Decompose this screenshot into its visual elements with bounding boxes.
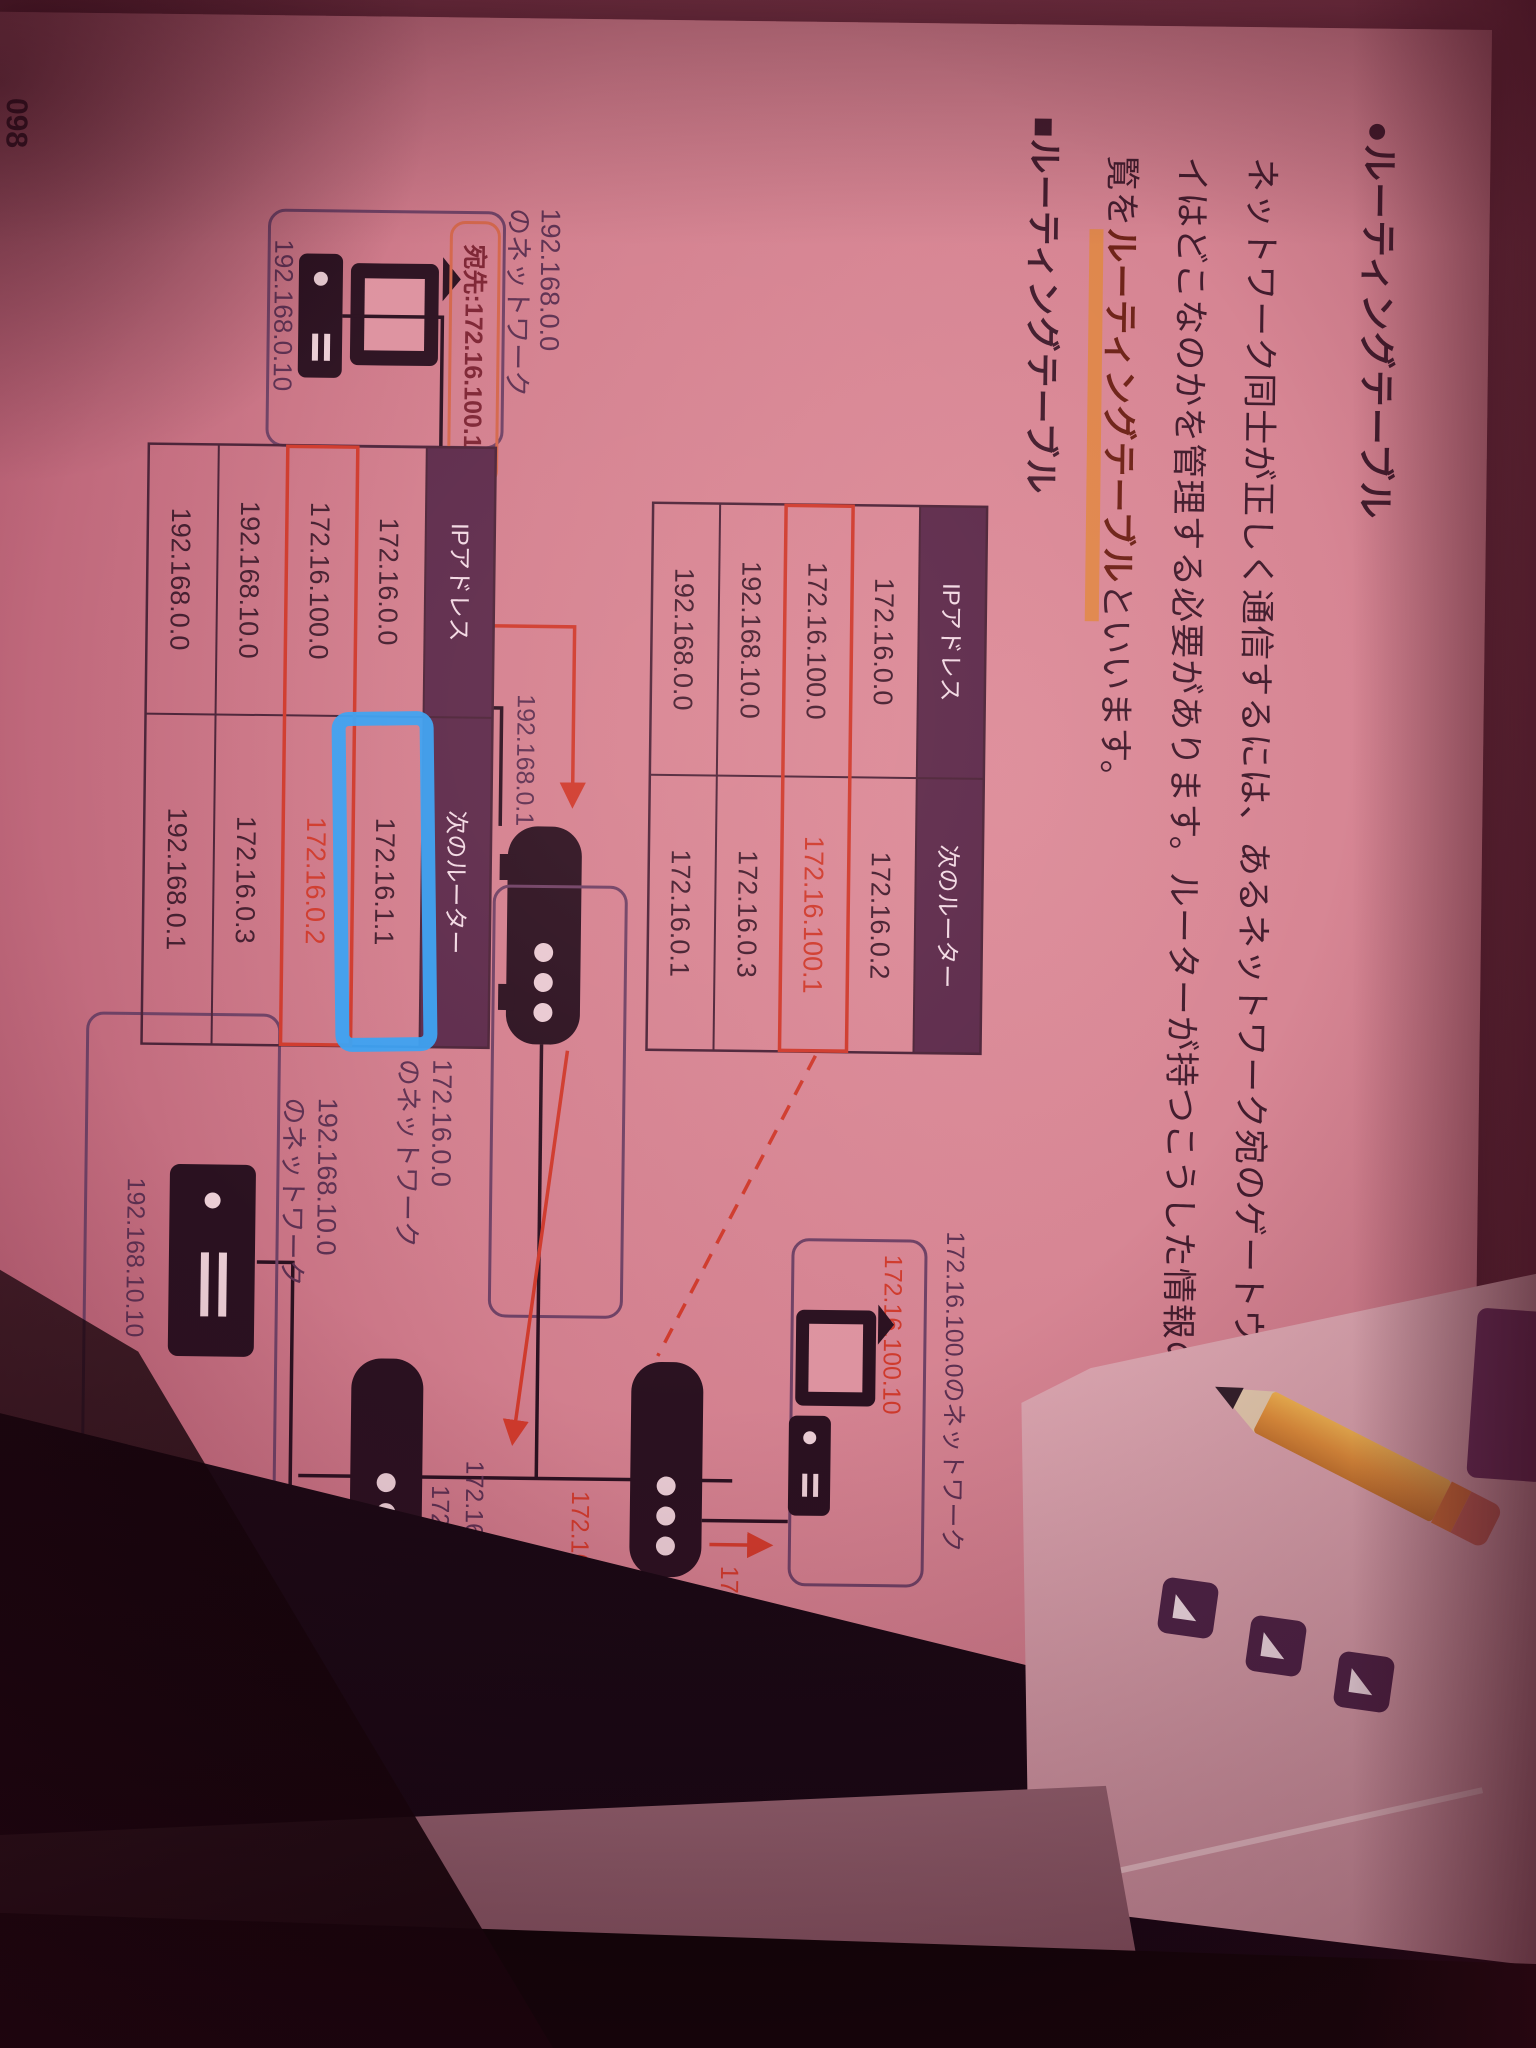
table-cell: 172.16.0.3 <box>731 850 763 978</box>
table-cell: 192.168.10.0 <box>233 501 265 659</box>
body-line-1: ネットワーク同士が正しく通信するには、あるネットワーク宛のゲートウェ <box>1227 157 1281 1381</box>
network-d-label-1: 192.168.10.0 <box>311 1098 343 1256</box>
router-r3-icon <box>349 1358 424 1574</box>
network-c-label-2: のネットワーク <box>391 1059 423 1248</box>
body-line-3: 覧をルーティングテーブルといいます。 <box>1095 155 1143 796</box>
network-a-label-1: 192.168.0.0 <box>534 208 566 351</box>
table-cell-marked: 172.16.1.1 <box>369 818 401 946</box>
page-number: 098 <box>0 98 33 148</box>
page-title: ●ルーティングテーブル <box>1354 120 1401 519</box>
body-line-2: イはどこなのかを管理する必要があります。ルーターが持つこうした情報の一 <box>1157 156 1211 1412</box>
table-cell: 172.16.100.0 <box>303 502 335 660</box>
packet-path-3 <box>709 1545 769 1546</box>
network-b-label: 172.16.100.0のネットワーク <box>937 1231 969 1552</box>
pc-a-address: 192.168.0.10 <box>267 239 299 391</box>
server-address: 192.168.10.10 <box>120 1177 150 1337</box>
table-cell: 172.16.0.3 <box>230 816 262 944</box>
lower-header-next: 次のルーター <box>441 810 470 954</box>
upper-header-ip: IPアドレス <box>936 583 964 702</box>
r2-wan-address: 172.16.0.2 <box>565 1491 594 1610</box>
network-d-label-2: のネットワーク <box>277 1097 309 1286</box>
section-tab <box>1466 1307 1536 1482</box>
book-page: ●ルーティングテーブル ネットワーク同士が正しく通信するには、あるネットワーク宛… <box>0 12 1492 1790</box>
table-cell: 192.168.0.0 <box>164 508 196 651</box>
table-cell: 172.16.0.0 <box>372 518 404 646</box>
page-edge-highlight <box>1023 1787 1483 1895</box>
router-r2-icon <box>629 1362 704 1578</box>
lower-header-ip: IPアドレス <box>444 523 472 642</box>
network-a-label-2: のネットワーク <box>501 208 533 397</box>
highlighted-term: ルーティングテーブル <box>1097 227 1141 583</box>
routing-table-upper: IPアドレス 次のルーター 172.16.0.0 172.16.0.2 172.… <box>646 503 987 1054</box>
table-cell-highlighted: 172.16.100.1 <box>797 836 829 994</box>
table-cell: 172.16.0.1 <box>664 849 696 977</box>
upper-header-next: 次のルーター <box>932 844 961 988</box>
r2-uplink <box>702 1520 788 1521</box>
r1-wan-address: 172.16.0.1 <box>459 1460 488 1579</box>
table-cell: 172.16.100.0 <box>801 562 833 720</box>
book-photo: ●ルーティングテーブル ネットワーク同士が正しく通信するには、あるネットワーク宛… <box>0 0 1536 2048</box>
table-cell: 192.168.10.0 <box>735 561 767 719</box>
table-cell: 192.168.0.1 <box>161 807 193 950</box>
page-content: ●ルーティングテーブル ネットワーク同士が正しく通信するには、あるネットワーク宛… <box>0 12 1492 1790</box>
r3-downlink <box>254 1262 353 1516</box>
destination-callout-text: 宛先:172.16.100.10 <box>458 243 490 463</box>
table-cell: 192.168.0.0 <box>668 568 700 711</box>
router-r1-icon <box>498 826 583 1045</box>
r1-lan-address: 192.168.0.1 <box>510 694 540 826</box>
server-icon <box>168 1164 256 1357</box>
r2-lan-address: 172.16.100.1 <box>713 1566 743 1712</box>
section-title: ■ルーティングテーブル <box>1020 116 1065 494</box>
r3-wan-address: 172.16.0.3 <box>425 1485 454 1604</box>
network-c-label-1: 172.16.0.0 <box>426 1059 458 1187</box>
table-cell: 172.16.0.2 <box>864 852 896 980</box>
table-cell-highlighted: 172.16.0.2 <box>300 817 332 945</box>
routing-table-lower: IPアドレス 次のルーター 172.16.0.0 172.16.1.1 172.… <box>142 444 496 1048</box>
r3-lan-address: 192.168.10.1 <box>306 1528 336 1674</box>
table-cell: 172.16.0.0 <box>868 578 900 706</box>
